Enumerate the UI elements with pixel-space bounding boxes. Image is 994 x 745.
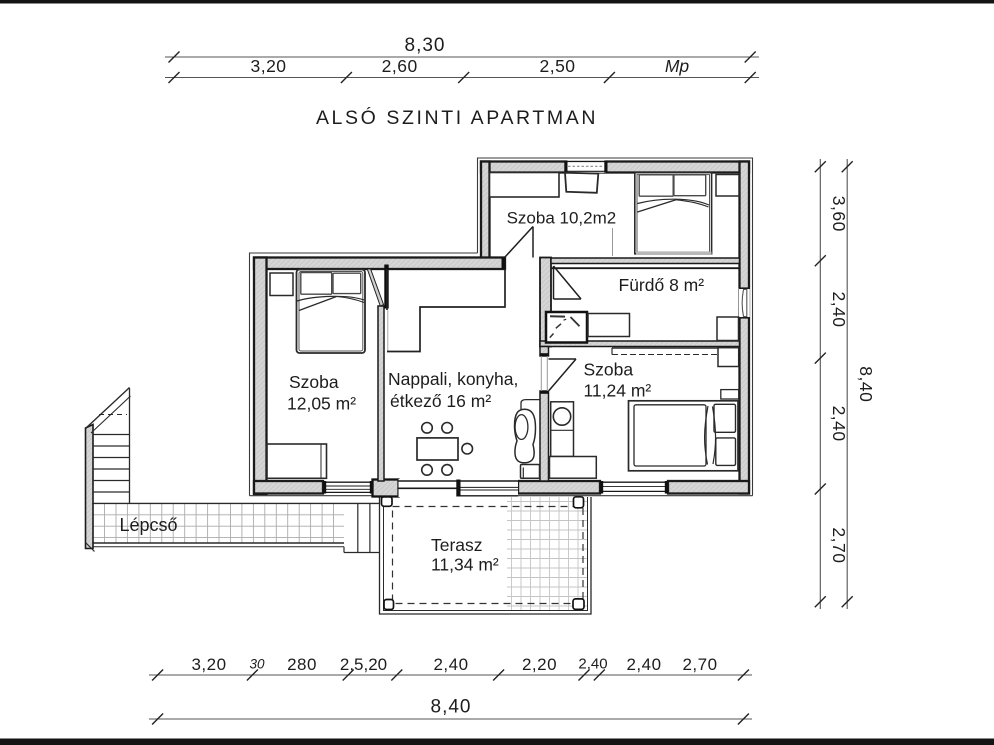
svg-text:2,40: 2,40 xyxy=(433,655,468,674)
svg-text:3,20: 3,20 xyxy=(250,56,286,76)
svg-text:8,40: 8,40 xyxy=(856,366,876,402)
svg-text:2,40: 2,40 xyxy=(578,656,607,673)
svg-text:12,05 m²: 12,05 m² xyxy=(287,394,356,414)
svg-text:3,60: 3,60 xyxy=(829,196,849,232)
svg-text:11,24 m²: 11,24 m² xyxy=(584,381,652,401)
svg-text:Terasz: Terasz xyxy=(431,535,483,555)
svg-text:280: 280 xyxy=(287,655,317,674)
svg-text:Fürdő 8 m²: Fürdő 8 m² xyxy=(619,275,705,295)
svg-text:3,20: 3,20 xyxy=(191,655,226,674)
svg-text:2,20: 2,20 xyxy=(522,655,557,674)
svg-text:Szoba: Szoba xyxy=(289,372,339,392)
svg-text:Mp: Mp xyxy=(665,56,690,76)
svg-text:8,40: 8,40 xyxy=(431,697,472,718)
svg-text:Nappali, konyha,: Nappali, konyha, xyxy=(388,369,518,389)
svg-text:ALSÓ SZINTI APARTMAN: ALSÓ SZINTI APARTMAN xyxy=(316,106,598,129)
svg-text:2,60: 2,60 xyxy=(382,56,418,76)
svg-text:2,40: 2,40 xyxy=(626,655,661,674)
svg-text:2,40: 2,40 xyxy=(829,291,849,327)
svg-text:2,40: 2,40 xyxy=(829,406,849,442)
svg-text:8,30: 8,30 xyxy=(405,35,446,56)
svg-text:30: 30 xyxy=(249,657,265,672)
svg-text:11,34 m²: 11,34 m² xyxy=(431,555,499,575)
svg-text:Szoba 10,2m2: Szoba 10,2m2 xyxy=(507,209,617,228)
svg-text:Lépcső: Lépcső xyxy=(120,515,178,535)
svg-text:2,70: 2,70 xyxy=(829,527,849,563)
svg-text:2,50: 2,50 xyxy=(539,56,575,76)
svg-text:2,5,20: 2,5,20 xyxy=(340,655,387,674)
svg-text:Szoba: Szoba xyxy=(584,360,634,380)
svg-text:2,70: 2,70 xyxy=(682,655,717,674)
svg-text:étkező 16 m²: étkező 16 m² xyxy=(390,391,491,411)
